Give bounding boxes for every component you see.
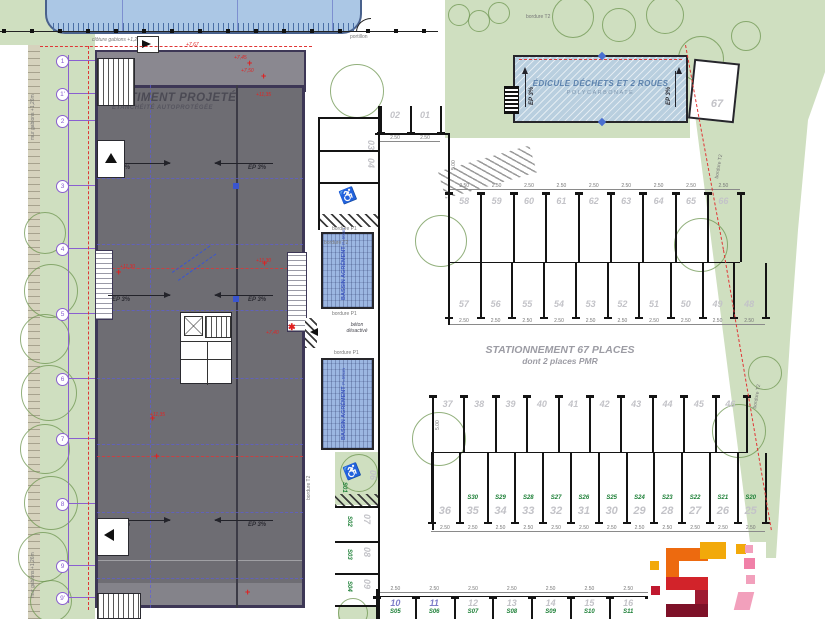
stall-divider bbox=[683, 396, 685, 453]
gate-symbol bbox=[137, 36, 159, 53]
grid-tick bbox=[68, 185, 95, 186]
bordure-label: bordure T2 bbox=[526, 14, 550, 20]
red-marker: + bbox=[261, 73, 266, 79]
stall-divider bbox=[620, 396, 622, 453]
dim-label: 2.50 bbox=[492, 183, 502, 189]
stall-divider bbox=[459, 453, 461, 523]
stall-number: 60 bbox=[524, 196, 534, 206]
fence-post bbox=[170, 29, 174, 33]
stall-number: 02 bbox=[390, 110, 400, 120]
stall-divider bbox=[513, 193, 515, 262]
logo bbox=[648, 542, 766, 619]
stall-divider bbox=[709, 453, 711, 523]
fence-post bbox=[254, 29, 258, 33]
stall-number: 32 bbox=[550, 505, 562, 517]
stall-divider bbox=[570, 453, 572, 523]
stall-label: S05 bbox=[390, 609, 401, 615]
hatch-strip bbox=[335, 494, 378, 506]
stall-number: 52 bbox=[617, 299, 627, 309]
mur-label: mur gabions +1,26m bbox=[30, 94, 36, 140]
water-joint bbox=[332, 0, 333, 32]
stall-divider bbox=[543, 263, 545, 318]
bordure-label: bordure P1 bbox=[332, 311, 357, 317]
stall-divider bbox=[598, 453, 600, 523]
stall-number: 03 bbox=[366, 140, 376, 150]
stall-number: 49 bbox=[712, 299, 722, 309]
elevation-label: +7,50 bbox=[241, 68, 254, 74]
joint-marker bbox=[233, 296, 239, 302]
stall-number: 62 bbox=[589, 196, 599, 206]
grid-marker: 2 bbox=[56, 115, 69, 128]
cell-line bbox=[318, 150, 380, 152]
dim-label: 2.50 bbox=[719, 183, 729, 189]
slope-label: EP 3% bbox=[112, 297, 130, 303]
stall-number: 10 bbox=[390, 598, 400, 608]
stall-divider bbox=[670, 263, 672, 318]
portillon-label: portillon bbox=[350, 34, 368, 40]
stall-divider bbox=[675, 193, 677, 262]
stall-number: 57 bbox=[459, 299, 469, 309]
stall-number: 40 bbox=[537, 399, 547, 409]
cell-line bbox=[335, 541, 378, 543]
logo-parallelogram bbox=[734, 592, 754, 610]
stall-divider bbox=[681, 453, 683, 523]
dim-label: 2.50 bbox=[623, 586, 633, 592]
stall-divider bbox=[578, 193, 580, 262]
dim-label: 2.50 bbox=[546, 586, 556, 592]
dim-label: 2.50 bbox=[554, 318, 564, 324]
stall-divider bbox=[558, 396, 560, 453]
stall-number: 35 bbox=[467, 505, 479, 517]
grid-marker: 9' bbox=[56, 592, 69, 605]
dim-label: 2.50 bbox=[468, 586, 478, 592]
stall-number: 37 bbox=[443, 399, 453, 409]
slope-arrow bbox=[108, 295, 170, 296]
fence-post bbox=[338, 29, 342, 33]
elevation-label: +7,67 bbox=[186, 42, 199, 48]
bordure-label: bordure T2 bbox=[306, 476, 312, 500]
water-joint bbox=[237, 0, 238, 32]
space-67-panel bbox=[688, 59, 740, 123]
stall-number: 39 bbox=[505, 399, 515, 409]
stall-number: 34 bbox=[494, 505, 506, 517]
stall-number: 04 bbox=[366, 158, 376, 168]
stall-number: 38 bbox=[474, 399, 484, 409]
parking-caption-line1: STATIONNEMENT 67 PLACES bbox=[460, 344, 660, 356]
elevation-label: +7,40 bbox=[266, 330, 279, 336]
stall-number: 13 bbox=[507, 598, 517, 608]
dim-line bbox=[380, 141, 440, 142]
stall-label: S09 bbox=[545, 609, 556, 615]
grid-tick bbox=[68, 565, 95, 566]
slope-label: EP 3% bbox=[248, 522, 266, 528]
dim-label: 2.50 bbox=[686, 183, 696, 189]
slope-arrow bbox=[525, 71, 526, 107]
stall-divider bbox=[531, 597, 533, 619]
stall-label: S07 bbox=[468, 609, 479, 615]
hatch-band bbox=[438, 145, 537, 198]
stall-label: S27 bbox=[551, 495, 562, 501]
stall-divider bbox=[495, 396, 497, 453]
stall-number: 45 bbox=[694, 399, 704, 409]
stall-number: 06 bbox=[368, 470, 378, 480]
building-subtitle-text: ÉTANCHÉITÉ AUTOPROTÉGÉE bbox=[112, 105, 297, 111]
stall-divider bbox=[610, 193, 612, 262]
stall-label: S04 bbox=[346, 581, 352, 592]
stall-label: S28 bbox=[523, 495, 534, 501]
fence-post bbox=[198, 29, 202, 33]
stall-label: S30 bbox=[467, 495, 478, 501]
dim-line bbox=[448, 189, 740, 190]
red-marker: + bbox=[262, 260, 267, 266]
stall-label: S23 bbox=[662, 495, 673, 501]
stall-label: S01 bbox=[341, 482, 347, 493]
fence-line bbox=[0, 31, 438, 32]
bac-symbol bbox=[504, 86, 519, 114]
slope-arrow bbox=[215, 295, 273, 296]
stall-divider bbox=[463, 396, 465, 453]
dim-label: 2.50 bbox=[391, 586, 401, 592]
bordure-label: bordure T2 bbox=[324, 240, 348, 246]
fence-post bbox=[86, 29, 90, 33]
logo-s-rightstub bbox=[695, 590, 708, 604]
stair-bottom-left bbox=[97, 593, 141, 619]
logo-square bbox=[651, 586, 660, 595]
dim-label: 2.50 bbox=[662, 525, 672, 531]
stall-number: 31 bbox=[578, 505, 590, 517]
stall-divider bbox=[448, 263, 450, 318]
fence-post bbox=[310, 29, 314, 33]
stall-divider bbox=[448, 193, 450, 262]
logo-square bbox=[744, 558, 755, 569]
parking-caption: STATIONNEMENT 67 PLACES dont 2 places PM… bbox=[460, 344, 660, 366]
red-marker: + bbox=[245, 589, 250, 595]
tree bbox=[488, 2, 510, 24]
stall-label: S08 bbox=[506, 609, 517, 615]
stall-divider bbox=[707, 193, 709, 262]
grid-tick bbox=[68, 120, 95, 121]
stall-divider bbox=[526, 396, 528, 453]
stall-number: 41 bbox=[568, 399, 578, 409]
dim-label: 2.50 bbox=[551, 525, 561, 531]
dim-label: 2.50 bbox=[390, 135, 400, 141]
aisle-dim: 5.00 bbox=[451, 160, 457, 170]
logo-square bbox=[746, 575, 755, 584]
stall-label: S20 bbox=[745, 495, 756, 501]
grid-marker: 4 bbox=[56, 243, 69, 256]
stall-label: S02 bbox=[346, 516, 352, 527]
stall-number: 66 bbox=[718, 196, 728, 206]
stall-divider bbox=[514, 453, 516, 523]
aisle-dim: 5.00 bbox=[435, 420, 441, 430]
bordure-label: bordure P1 bbox=[332, 226, 357, 232]
stall-label: S06 bbox=[429, 609, 440, 615]
dim-label: 2.50 bbox=[690, 525, 700, 531]
stall-divider bbox=[746, 396, 748, 453]
dim-label: 2.50 bbox=[713, 318, 723, 324]
stall-divider bbox=[702, 263, 704, 318]
beton-note: béton désactivé bbox=[336, 322, 378, 334]
tree bbox=[338, 598, 368, 619]
dim-label: 2.50 bbox=[429, 586, 439, 592]
boundary-red-left bbox=[88, 46, 89, 610]
boundary-red-top bbox=[40, 46, 312, 47]
dim-label: 2.50 bbox=[607, 525, 617, 531]
dim-label: 2.50 bbox=[522, 318, 532, 324]
grid-tick bbox=[68, 503, 95, 504]
wheelchair-icon: ♿ bbox=[338, 186, 359, 207]
stall-divider bbox=[480, 263, 482, 318]
dim-label: 2.50 bbox=[654, 183, 664, 189]
grid-dim-line bbox=[68, 55, 69, 603]
row-divider-line bbox=[448, 262, 740, 263]
stall-label: S25 bbox=[606, 495, 617, 501]
tree bbox=[20, 424, 70, 474]
stall-number: 14 bbox=[546, 598, 556, 608]
stall-number: 55 bbox=[522, 299, 532, 309]
stair-top-left bbox=[97, 58, 135, 106]
grid-marker: 6 bbox=[56, 373, 69, 386]
bassin-agrement bbox=[321, 358, 374, 450]
red-marker: + bbox=[116, 269, 121, 275]
dim-label: 2.50 bbox=[459, 183, 469, 189]
stall-number: 30 bbox=[606, 505, 618, 517]
stair-box bbox=[97, 518, 129, 556]
slope-arrow bbox=[215, 520, 273, 521]
red-marker: ✱ bbox=[288, 324, 296, 330]
stall-divider bbox=[570, 597, 572, 619]
slope-arrow bbox=[215, 163, 273, 164]
stall-divider bbox=[642, 193, 644, 262]
grid-marker: 8 bbox=[56, 498, 69, 511]
light-well bbox=[287, 252, 307, 332]
dim-label: 2.50 bbox=[420, 135, 430, 141]
fence-post bbox=[226, 29, 230, 33]
stall-number: 64 bbox=[654, 196, 664, 206]
slope-label: EP 3% bbox=[529, 87, 535, 105]
stall-number: 12 bbox=[468, 598, 478, 608]
dim-label: 2.50 bbox=[523, 525, 533, 531]
fence-post bbox=[142, 29, 146, 33]
stall-divider bbox=[415, 597, 417, 619]
dim-label: 2.50 bbox=[579, 525, 589, 531]
stall-label: S22 bbox=[690, 495, 701, 501]
edicule-dechets: ÉDICULE DÉCHETS ET 2 ROUES POLYCARBONATE… bbox=[513, 55, 688, 123]
fence-post bbox=[2, 29, 6, 33]
fence-post bbox=[422, 29, 426, 33]
stall-number: 27 bbox=[689, 505, 701, 517]
stall-divider bbox=[410, 106, 412, 133]
slope-label: EP 3% bbox=[248, 165, 266, 171]
logo-yellow-block bbox=[700, 542, 726, 559]
elevation-label: +11,30 bbox=[120, 264, 135, 270]
dim-label: 2.50 bbox=[459, 318, 469, 324]
tree bbox=[20, 314, 70, 364]
stall-number: 26 bbox=[717, 505, 729, 517]
stall-divider bbox=[380, 106, 382, 133]
grid-tick bbox=[68, 597, 95, 598]
logo-s-bottom bbox=[666, 604, 708, 617]
stall-number: 29 bbox=[633, 505, 645, 517]
light-well bbox=[95, 250, 113, 320]
grid-line bbox=[97, 178, 303, 179]
stall-number: 07 bbox=[362, 514, 372, 524]
tree bbox=[415, 215, 467, 267]
stall-number: 46 bbox=[725, 399, 735, 409]
site-plan: portillon clôture gabions +1,26m mur gab… bbox=[0, 0, 825, 619]
dim-label: 2.50 bbox=[746, 525, 756, 531]
stall-divider bbox=[480, 193, 482, 262]
grid-tick bbox=[68, 248, 95, 249]
dim-label: 2.50 bbox=[491, 318, 501, 324]
dim-label: 2.50 bbox=[468, 525, 478, 531]
grid-line bbox=[97, 512, 303, 513]
dim-label: 2.50 bbox=[507, 586, 517, 592]
side-cell-wall bbox=[318, 117, 320, 230]
slope-arrow bbox=[675, 71, 676, 107]
stall-divider bbox=[607, 263, 609, 318]
stall-number: 25 bbox=[745, 505, 757, 517]
dim-label: 2.50 bbox=[589, 183, 599, 189]
tree bbox=[602, 8, 636, 42]
top-left-green bbox=[0, 0, 45, 45]
stall-number: 56 bbox=[491, 299, 501, 309]
grid-marker: 7 bbox=[56, 433, 69, 446]
tree bbox=[24, 264, 78, 318]
stall-label: S03 bbox=[346, 549, 352, 560]
stall-divider bbox=[431, 453, 433, 523]
grid-line bbox=[97, 578, 303, 579]
dim-label: 2.50 bbox=[621, 183, 631, 189]
grid-marker: 3 bbox=[56, 180, 69, 193]
bassin-label: BASSIN AGRÉMENT P=50cm bbox=[341, 228, 347, 300]
red-marker: + bbox=[247, 60, 252, 66]
tree bbox=[330, 64, 384, 118]
stall-number: 65 bbox=[686, 196, 696, 206]
stall-number: 54 bbox=[554, 299, 564, 309]
tree bbox=[448, 4, 470, 26]
fence-post bbox=[114, 29, 118, 33]
stall-divider bbox=[609, 597, 611, 619]
stall-divider bbox=[740, 193, 742, 262]
logo-s-mid bbox=[666, 577, 708, 590]
cell-line bbox=[335, 605, 378, 607]
dim-label: 2.50 bbox=[440, 525, 450, 531]
stall-label: S10 bbox=[584, 609, 595, 615]
stall-divider bbox=[454, 597, 456, 619]
fence-post bbox=[282, 29, 286, 33]
stall-number: 53 bbox=[586, 299, 596, 309]
dim-label: 2.50 bbox=[585, 586, 595, 592]
building-terrace-line bbox=[98, 560, 302, 561]
joint-marker bbox=[233, 183, 239, 189]
water-feature bbox=[45, 0, 362, 34]
fence-post bbox=[366, 29, 370, 33]
entrance-arrow bbox=[310, 328, 318, 336]
stall-number: 16 bbox=[623, 598, 633, 608]
elevator-icon bbox=[184, 316, 203, 336]
fence-post bbox=[30, 29, 34, 33]
stall-divider bbox=[575, 263, 577, 318]
grid-line bbox=[97, 244, 303, 245]
stall-number: 42 bbox=[600, 399, 610, 409]
cell-line bbox=[318, 182, 380, 184]
grid-marker: 5 bbox=[56, 308, 69, 321]
mur-label: mur gabions +1,26m bbox=[30, 552, 36, 598]
water-hatch bbox=[53, 23, 354, 31]
stall-number: 43 bbox=[631, 399, 641, 409]
tree bbox=[748, 356, 782, 390]
bassin-label: BASSIN AGRÉMENT P=50cm bbox=[341, 368, 347, 440]
dim-label: 2.50 bbox=[681, 318, 691, 324]
dim-line bbox=[376, 592, 648, 593]
grid-tick bbox=[68, 378, 95, 379]
fence-post bbox=[394, 29, 398, 33]
grid-marker: 1' bbox=[56, 88, 69, 101]
grid-tick bbox=[68, 313, 95, 314]
tree bbox=[731, 21, 761, 51]
stall-divider bbox=[511, 263, 513, 318]
stall-number: 33 bbox=[522, 505, 534, 517]
stall-divider bbox=[542, 453, 544, 523]
dim-label: 2.50 bbox=[718, 525, 728, 531]
dim-label: 2.50 bbox=[618, 318, 628, 324]
logo-square bbox=[745, 545, 753, 553]
stall-number: 11 bbox=[430, 598, 439, 608]
stall-divider bbox=[653, 453, 655, 523]
stall-number: 61 bbox=[556, 196, 566, 206]
grid-tick bbox=[68, 93, 95, 94]
stall-divider bbox=[626, 453, 628, 523]
grid-marker: 9 bbox=[56, 560, 69, 573]
logo-s-leftstub bbox=[666, 561, 679, 577]
bordure-label: bordure P1 bbox=[334, 350, 359, 356]
stall-divider bbox=[715, 396, 717, 453]
stall-number: 09 bbox=[362, 579, 372, 589]
stall-number: 58 bbox=[459, 196, 469, 206]
tree bbox=[18, 532, 68, 582]
grid-line bbox=[97, 444, 303, 445]
dim-label: 2.50 bbox=[744, 318, 754, 324]
stall-number: 15 bbox=[584, 598, 594, 608]
water-joint bbox=[122, 0, 123, 32]
dim-label: 2.50 bbox=[496, 525, 506, 531]
elevation-label: +7,45 bbox=[234, 55, 247, 61]
dim-label: 2.50 bbox=[635, 525, 645, 531]
parking-caption-line2: dont 2 places PMR bbox=[460, 356, 660, 366]
stall-number: 51 bbox=[649, 299, 659, 309]
stair-box bbox=[97, 140, 125, 178]
grid-line bbox=[97, 310, 303, 311]
grid-tick bbox=[68, 438, 95, 439]
stall-divider bbox=[737, 453, 739, 523]
dim-line bbox=[431, 531, 765, 532]
elevation-label: +11,35 bbox=[256, 92, 271, 98]
dim-label: 2.50 bbox=[557, 183, 567, 189]
cell-line bbox=[335, 573, 378, 575]
stall-divider bbox=[545, 193, 547, 262]
stall-divider bbox=[765, 263, 767, 318]
red-marker: + bbox=[154, 453, 159, 459]
core-block bbox=[180, 312, 232, 384]
logo-square bbox=[650, 561, 659, 570]
red-axis bbox=[97, 456, 303, 457]
stall-label: S11 bbox=[623, 609, 633, 615]
stall-number: 67 bbox=[711, 98, 723, 110]
stall-number: 44 bbox=[662, 399, 672, 409]
red-marker: + bbox=[150, 415, 155, 421]
stall-number: 50 bbox=[681, 299, 691, 309]
